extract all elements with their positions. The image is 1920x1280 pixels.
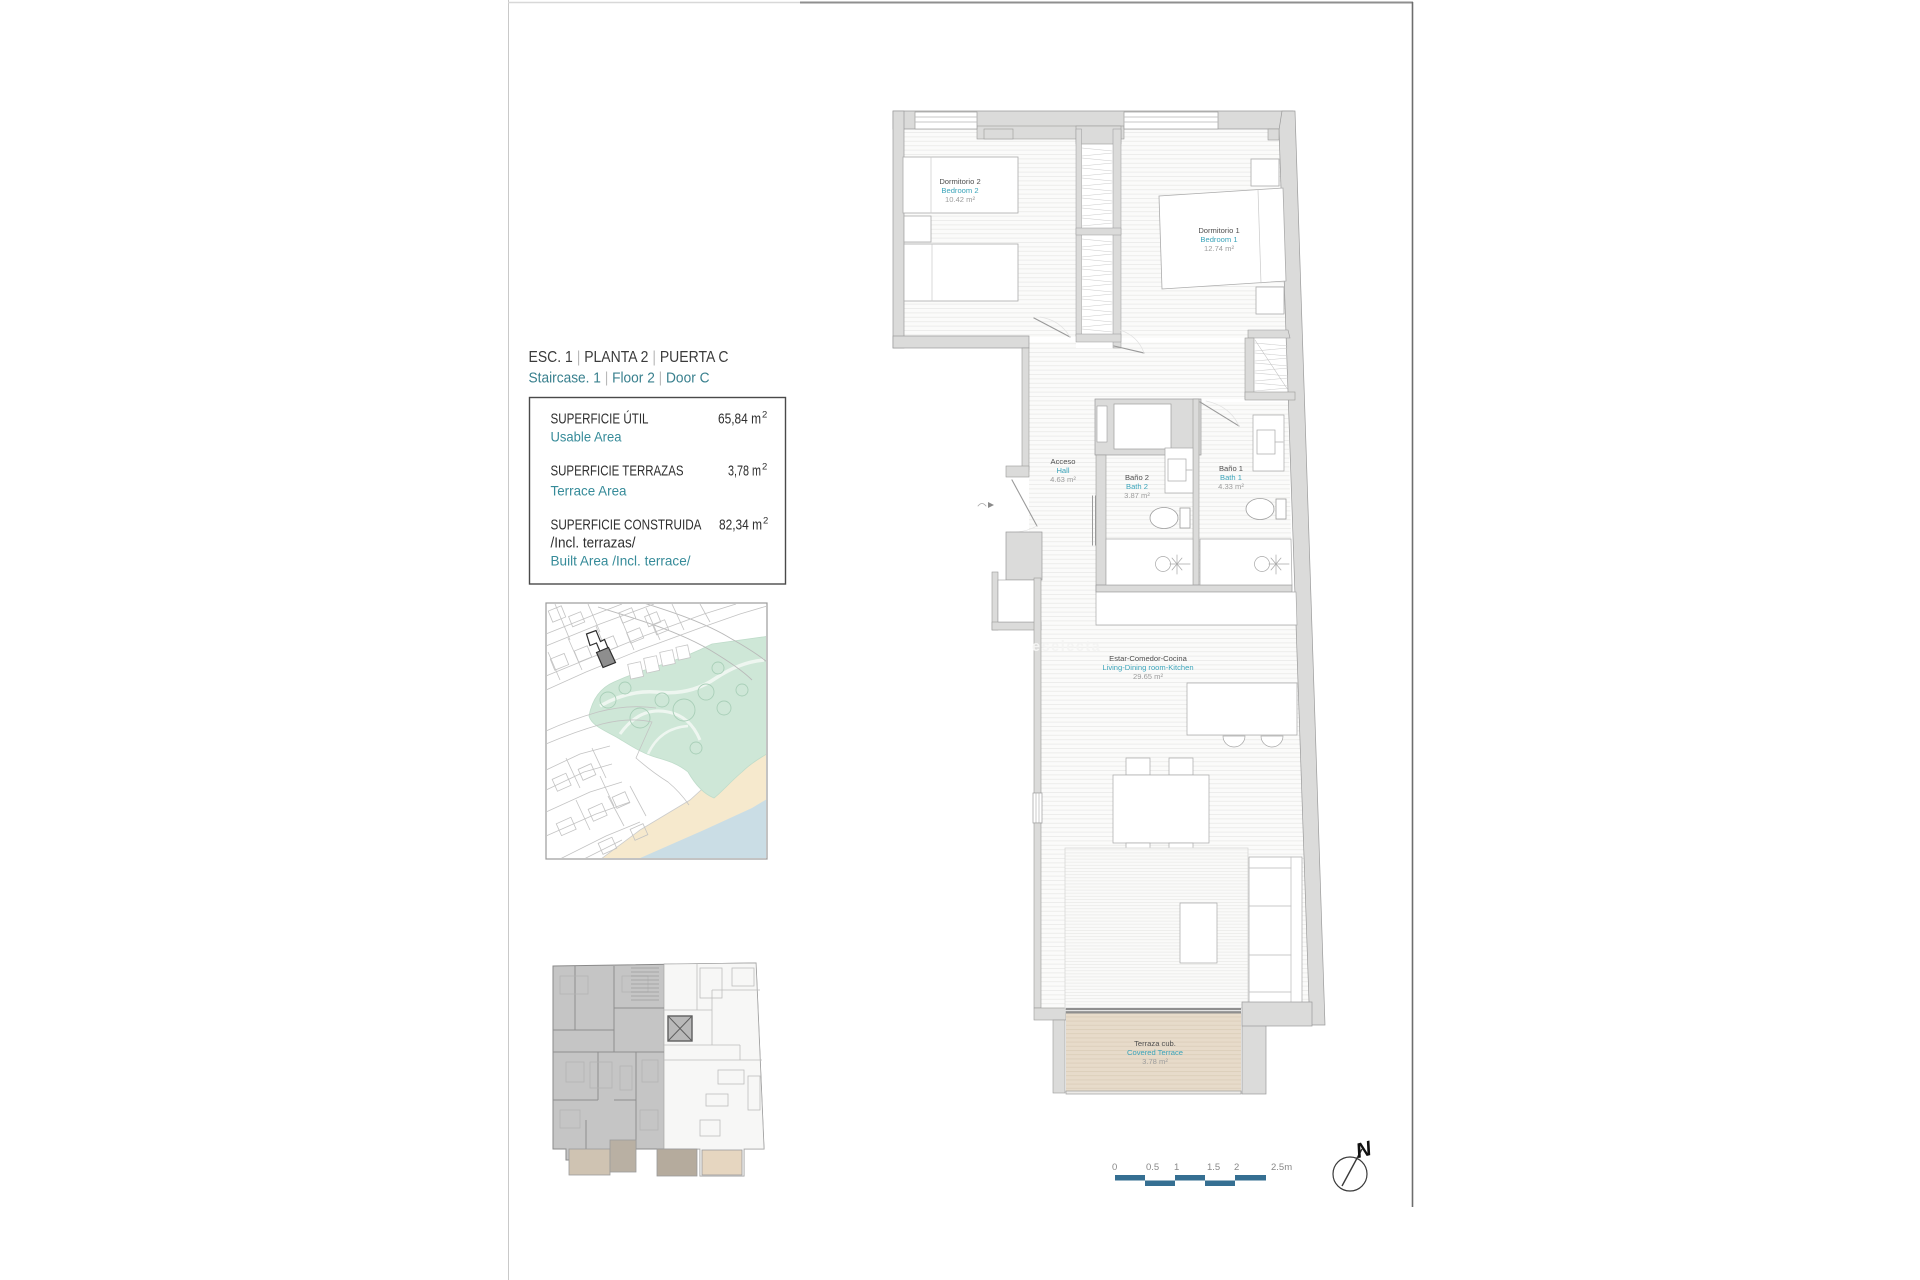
svg-text:0: 0: [1112, 1162, 1117, 1173]
svg-text:Living-Dining room-Kitchen: Living-Dining room-Kitchen: [1102, 663, 1193, 672]
svg-text:Staircase. 1 | Floor 2 | Do: Staircase. 1 | Floor 2 | Door C: [529, 371, 710, 387]
svg-text:65,84 m: 65,84 m: [718, 411, 761, 427]
svg-text:3.87 m²: 3.87 m²: [1124, 491, 1150, 500]
svg-text:4.63 m²: 4.63 m²: [1050, 475, 1076, 484]
svg-text:2: 2: [763, 516, 768, 527]
svg-text:3,78 m: 3,78 m: [728, 464, 761, 480]
svg-text:Terraza cub.: Terraza cub.: [1134, 1039, 1176, 1048]
svg-text:4.33 m²: 4.33 m²: [1218, 482, 1244, 491]
svg-text:SUPERFICIE ÚTIL: SUPERFICIE ÚTIL: [551, 410, 649, 427]
svg-text:Baño 1: Baño 1: [1219, 464, 1243, 473]
svg-text:/Incl. terrazas/: /Incl. terrazas/: [551, 536, 637, 552]
svg-text:Bedroom 2: Bedroom 2: [941, 186, 978, 195]
svg-text:Covered Terrace: Covered Terrace: [1127, 1048, 1183, 1057]
svg-text:2.5m: 2.5m: [1271, 1162, 1292, 1173]
svg-text:10.42 m²: 10.42 m²: [945, 195, 975, 204]
svg-text:1.5: 1.5: [1207, 1162, 1220, 1173]
svg-text:Acceso: Acceso: [1051, 457, 1076, 466]
svg-text:Bedroom 1: Bedroom 1: [1200, 235, 1237, 244]
svg-text:Bath 2: Bath 2: [1126, 482, 1148, 491]
svg-text:Dormitorio 2: Dormitorio 2: [939, 177, 980, 186]
svg-text:Built Area /Incl. terrace/: Built Area /Incl. terrace/: [551, 553, 691, 569]
svg-text:2: 2: [762, 462, 767, 473]
svg-text:eselecta: eselecta: [1032, 639, 1101, 655]
svg-text:29.65 m²: 29.65 m²: [1133, 672, 1163, 681]
svg-text:Dormitorio 1: Dormitorio 1: [1198, 226, 1239, 235]
svg-text:Hall: Hall: [1056, 466, 1069, 475]
svg-text:1: 1: [1174, 1162, 1179, 1173]
svg-text:Baño 2: Baño 2: [1125, 473, 1149, 482]
svg-text:2: 2: [1234, 1162, 1239, 1173]
svg-text:3.78 m²: 3.78 m²: [1142, 1057, 1168, 1066]
svg-text:82,34 m: 82,34 m: [719, 517, 762, 533]
svg-text:Usable Area: Usable Area: [551, 429, 622, 445]
svg-text:Bath 1: Bath 1: [1220, 473, 1242, 482]
svg-text:0.5: 0.5: [1146, 1162, 1159, 1173]
svg-text:12.74 m²: 12.74 m²: [1204, 244, 1234, 253]
svg-text:Terrace Area: Terrace Area: [551, 483, 627, 499]
svg-text:SUPERFICIE CONSTRUIDA: SUPERFICIE CONSTRUIDA: [551, 517, 702, 533]
svg-text:Estar-Comedor-Cocina: Estar-Comedor-Cocina: [1109, 654, 1187, 663]
svg-text:SUPERFICIE TERRAZAS: SUPERFICIE TERRAZAS: [551, 464, 684, 480]
svg-text:2: 2: [762, 410, 767, 421]
svg-text:ESC. 1 | PLANTA 2 | PUERTA: ESC. 1 | PLANTA 2 | PUERTA C: [529, 349, 729, 366]
